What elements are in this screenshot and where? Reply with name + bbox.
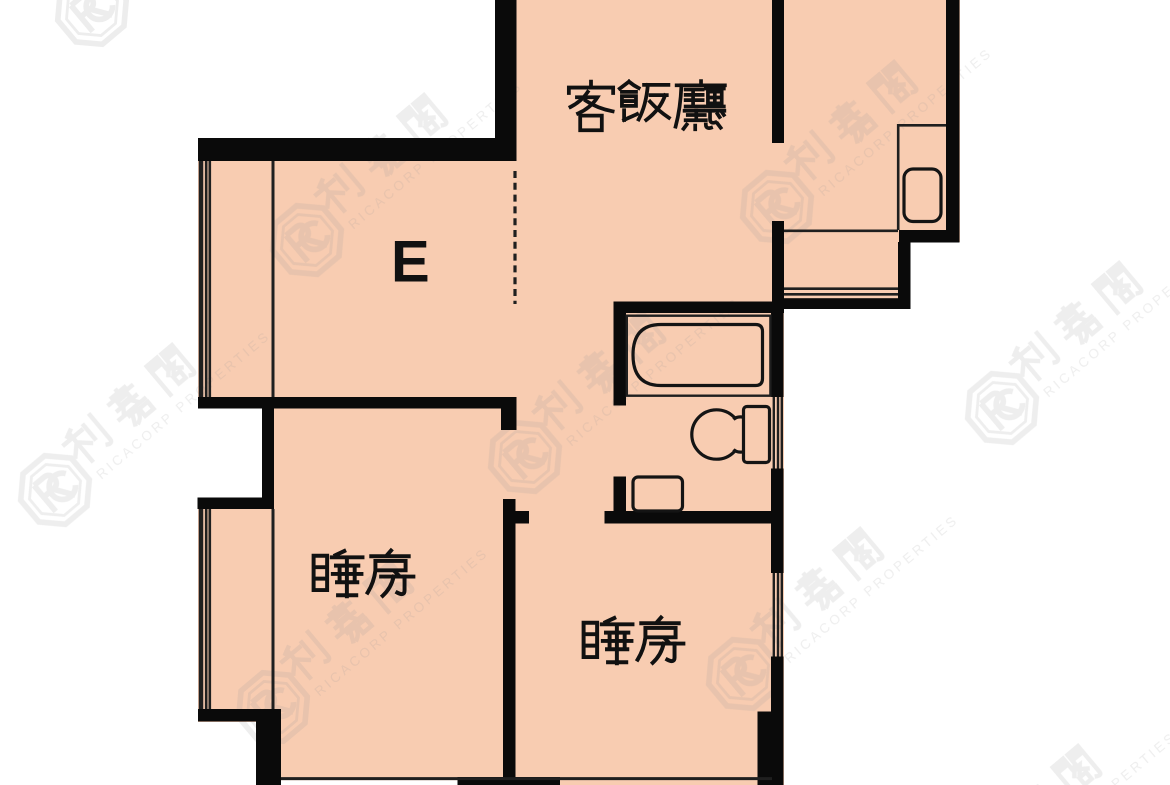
svg-text:E: E xyxy=(391,230,430,295)
